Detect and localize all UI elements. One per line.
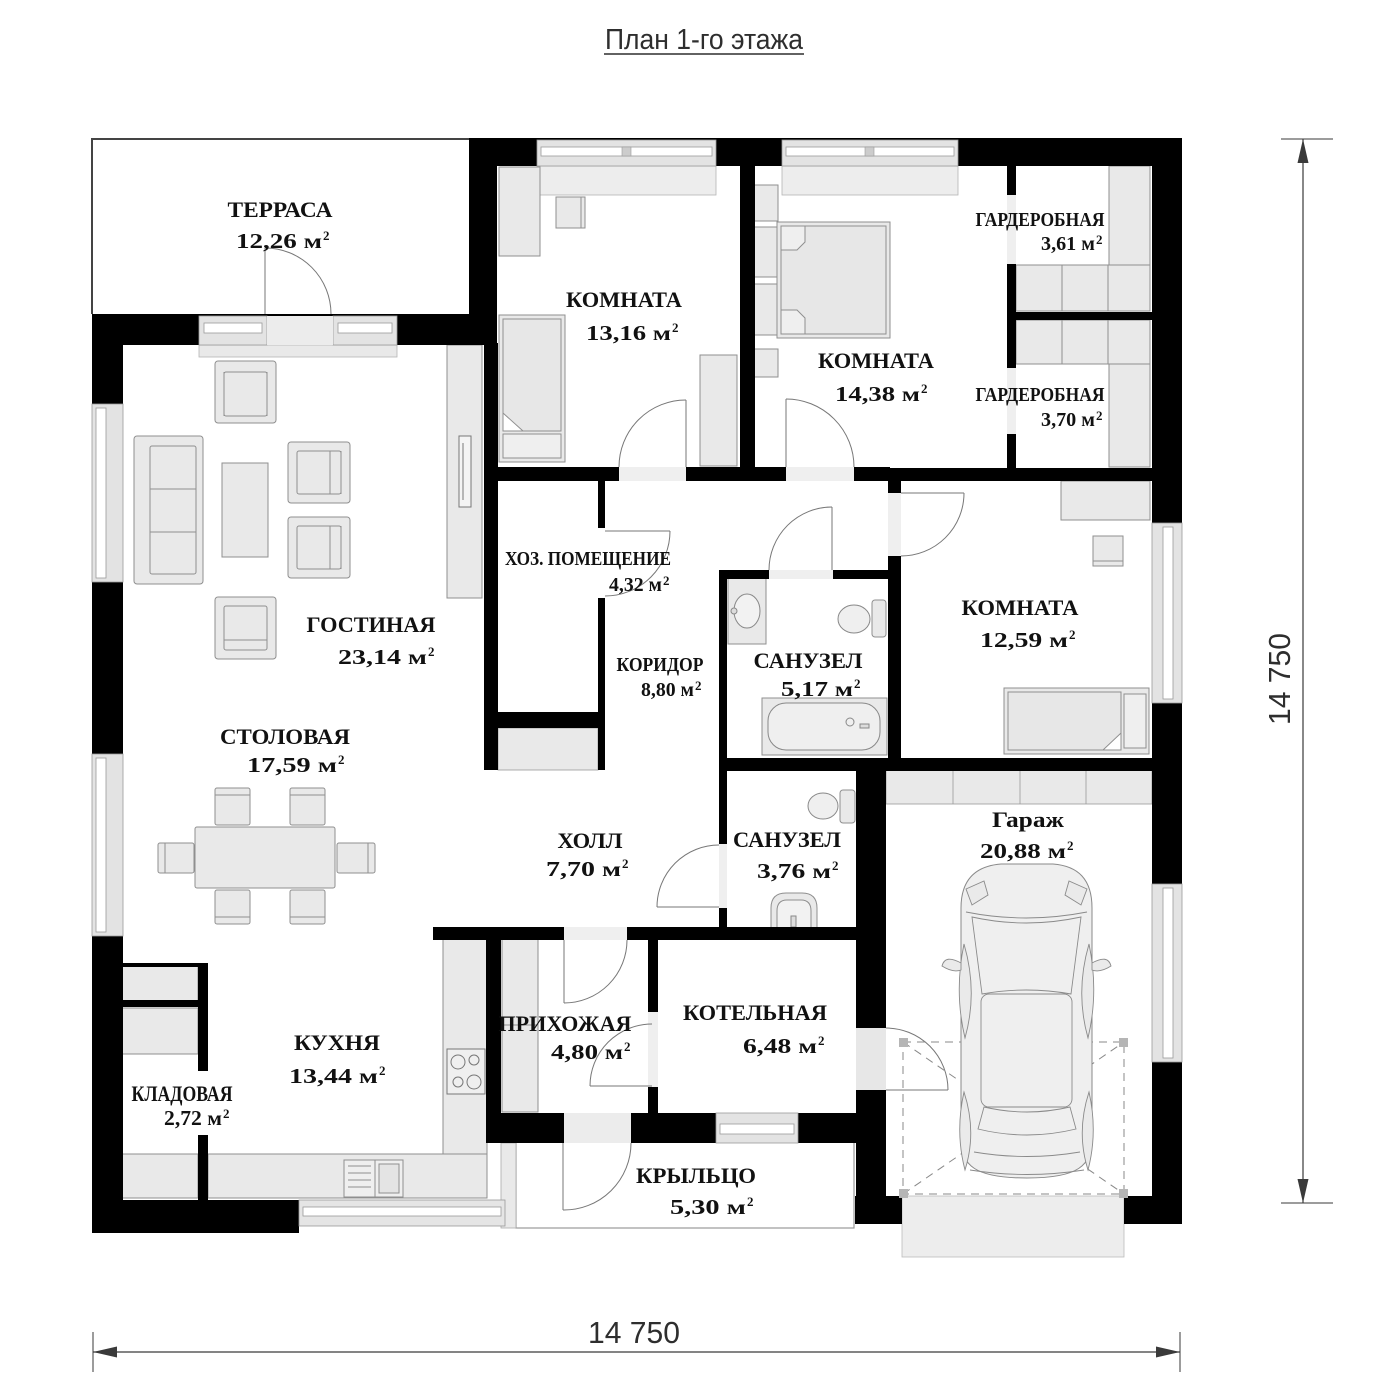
svg-text:13,16 м: 13,16 м [586,321,671,345]
svg-text:2: 2 [428,644,435,659]
svg-text:2: 2 [379,1063,386,1078]
svg-text:2: 2 [1096,232,1103,247]
svg-text:ГОСТИНАЯ: ГОСТИНАЯ [307,612,436,637]
svg-text:3,76 м: 3,76 м [757,859,831,883]
svg-text:2,72 м: 2,72 м [164,1106,222,1130]
svg-text:КОМНАТА: КОМНАТА [566,287,682,312]
svg-text:План 1-го этажа: План 1-го этажа [605,24,804,56]
svg-text:3,70 м: 3,70 м [1041,409,1095,431]
svg-text:2: 2 [1096,408,1103,423]
svg-text:САНУЗЕЛ: САНУЗЕЛ [733,827,842,852]
svg-text:ХОЗ. ПОМЕЩЕНИЕ: ХОЗ. ПОМЕЩЕНИЕ [505,548,671,570]
svg-text:8,80 м: 8,80 м [641,679,694,701]
svg-text:САНУЗЕЛ: САНУЗЕЛ [754,648,864,673]
svg-text:13,44 м: 13,44 м [289,1064,378,1088]
svg-text:КОТЕЛЬНАЯ: КОТЕЛЬНАЯ [683,1000,827,1025]
svg-text:3,61 м: 3,61 м [1041,233,1095,255]
svg-text:2: 2 [695,678,702,693]
svg-text:2: 2 [223,1106,230,1121]
svg-text:ПРИХОЖАЯ: ПРИХОЖАЯ [499,1011,632,1036]
svg-text:ТЕРРАСА: ТЕРРАСА [228,197,333,222]
svg-text:2: 2 [323,228,330,243]
svg-text:2: 2 [1069,627,1076,642]
svg-text:12,59 м: 12,59 м [980,628,1068,652]
svg-text:ГАРДЕРОБНАЯ: ГАРДЕРОБНАЯ [976,209,1105,231]
svg-text:14 750: 14 750 [588,1315,680,1350]
svg-text:Гараж: Гараж [992,807,1064,832]
svg-text:4,32 м: 4,32 м [609,574,662,596]
svg-text:4,80 м: 4,80 м [551,1040,623,1064]
svg-text:2: 2 [338,752,345,767]
svg-text:2: 2 [818,1033,825,1048]
svg-text:2: 2 [747,1194,754,1209]
svg-text:КОРИДОР: КОРИДОР [617,654,704,676]
svg-text:КОМНАТА: КОМНАТА [818,348,934,373]
svg-text:14 750: 14 750 [1262,633,1297,725]
svg-text:2: 2 [1067,838,1074,853]
svg-text:ХОЛЛ: ХОЛЛ [558,828,624,853]
svg-text:20,88 м: 20,88 м [980,839,1066,863]
svg-text:2: 2 [854,676,861,691]
svg-text:2: 2 [832,858,839,873]
svg-text:2: 2 [663,573,670,588]
svg-text:ГАРДЕРОБНАЯ: ГАРДЕРОБНАЯ [976,384,1105,406]
svg-text:5,30 м: 5,30 м [670,1195,746,1219]
svg-text:2: 2 [672,320,679,335]
svg-text:14,38 м: 14,38 м [835,382,920,406]
svg-text:КЛАДОВАЯ: КЛАДОВАЯ [132,1081,233,1106]
svg-text:23,14 м: 23,14 м [338,645,427,669]
svg-text:2: 2 [624,1039,631,1054]
svg-text:2: 2 [622,856,629,871]
svg-text:6,48 м: 6,48 м [743,1034,817,1058]
svg-text:5,17 м: 5,17 м [781,677,853,701]
svg-text:12,26 м: 12,26 м [236,229,322,253]
svg-text:7,70 м: 7,70 м [546,857,621,881]
svg-text:СТОЛОВАЯ: СТОЛОВАЯ [220,724,350,749]
svg-text:2: 2 [921,381,928,396]
svg-text:17,59 м: 17,59 м [247,753,337,777]
svg-text:КРЫЛЬЦО: КРЫЛЬЦО [636,1163,756,1188]
svg-text:КОМНАТА: КОМНАТА [962,595,1079,620]
svg-text:КУХНЯ: КУХНЯ [294,1030,380,1055]
